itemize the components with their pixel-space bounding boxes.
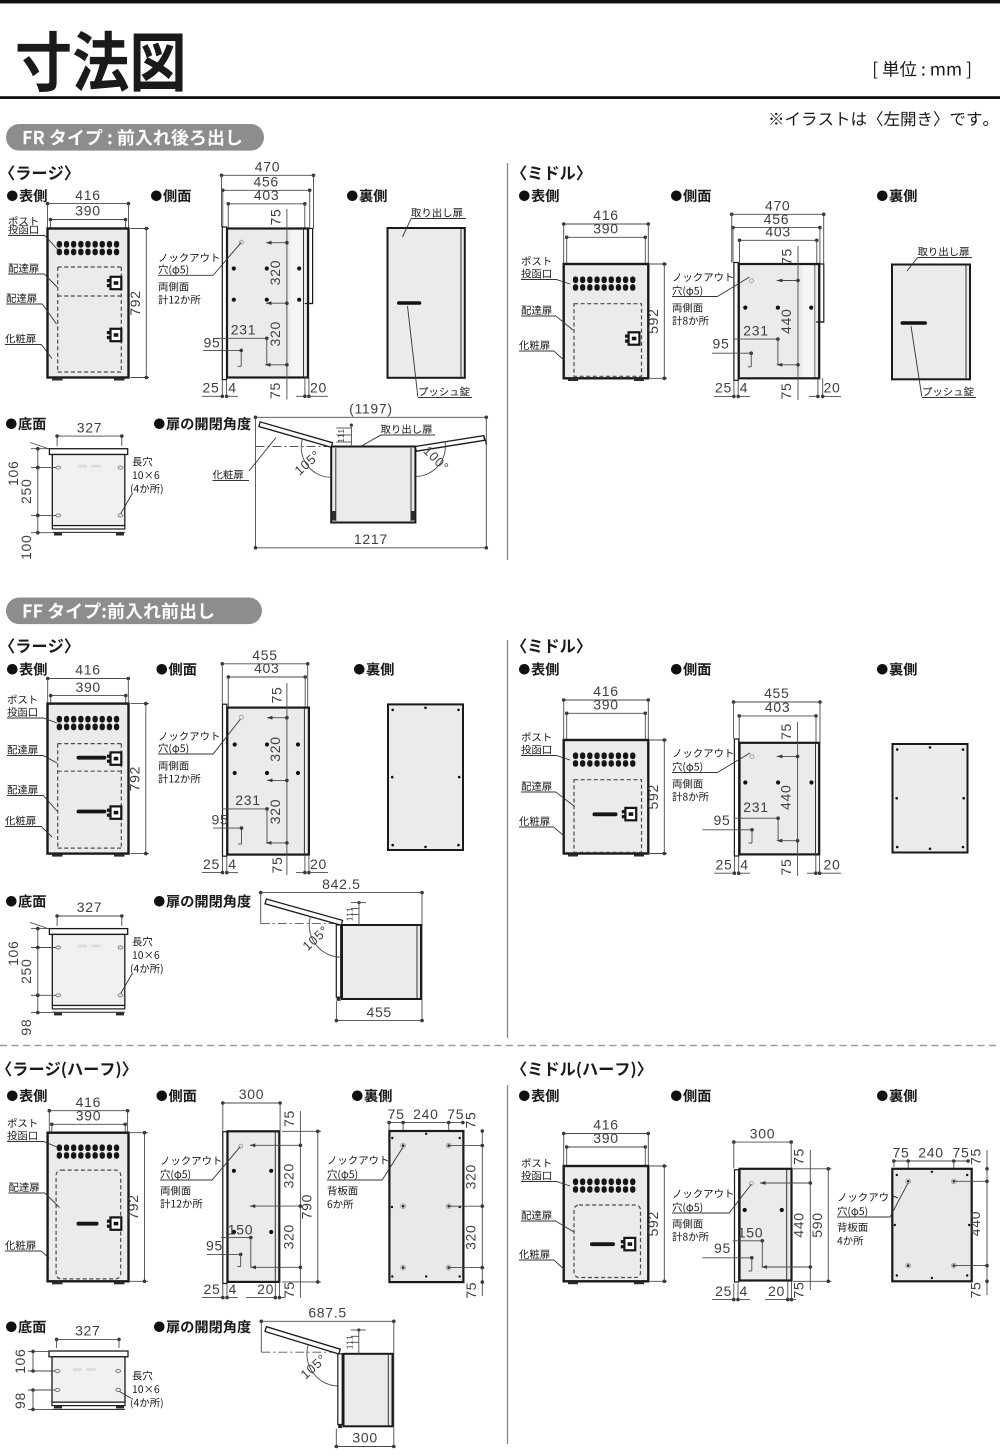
- svg-text:75: 75: [281, 1110, 297, 1127]
- svg-text:100°: 100°: [420, 443, 452, 475]
- svg-text:390: 390: [593, 697, 618, 713]
- svg-text:75: 75: [791, 1282, 807, 1299]
- svg-text:75: 75: [967, 1148, 983, 1165]
- svg-text:231: 231: [235, 792, 260, 808]
- svg-text:231: 231: [231, 322, 256, 338]
- svg-text:300: 300: [750, 1125, 775, 1141]
- svg-text:105°: 105°: [297, 1351, 329, 1382]
- svg-text:792: 792: [127, 290, 143, 315]
- svg-text:440: 440: [790, 1212, 806, 1237]
- svg-text:240: 240: [918, 1144, 943, 1160]
- svg-text:150: 150: [228, 1222, 253, 1238]
- svg-text:327: 327: [75, 1323, 100, 1339]
- svg-text:98: 98: [18, 1019, 34, 1036]
- svg-text:4: 4: [228, 380, 237, 396]
- svg-text:105°: 105°: [299, 923, 331, 954]
- svg-text:75: 75: [463, 1282, 479, 1299]
- svg-text:4: 4: [228, 856, 237, 872]
- svg-text:95: 95: [714, 812, 731, 828]
- svg-text:20: 20: [257, 1281, 274, 1297]
- svg-text:111: 111: [337, 428, 346, 442]
- svg-text:100: 100: [18, 534, 34, 559]
- svg-text:320: 320: [463, 1164, 479, 1189]
- svg-text:75: 75: [269, 687, 285, 704]
- svg-text:75: 75: [463, 1112, 479, 1129]
- svg-text:20: 20: [310, 380, 327, 396]
- svg-text:842.5: 842.5: [322, 876, 361, 892]
- svg-text:327: 327: [77, 419, 102, 435]
- svg-text:75: 75: [778, 248, 794, 265]
- svg-text:95: 95: [714, 1240, 731, 1256]
- svg-text:75: 75: [893, 1144, 910, 1160]
- svg-text:1217: 1217: [354, 531, 388, 547]
- svg-text:4: 4: [740, 380, 749, 396]
- svg-text:320: 320: [267, 799, 283, 824]
- svg-text:231: 231: [743, 323, 768, 339]
- svg-text:390: 390: [593, 1130, 618, 1146]
- svg-text:75: 75: [267, 209, 283, 226]
- svg-text:470: 470: [255, 159, 280, 175]
- svg-text:25: 25: [203, 856, 220, 872]
- svg-text:150: 150: [738, 1224, 763, 1240]
- svg-text:390: 390: [593, 221, 618, 237]
- svg-text:440: 440: [778, 785, 794, 810]
- svg-text:250: 250: [18, 479, 34, 504]
- svg-text:390: 390: [76, 1108, 101, 1124]
- svg-text:75: 75: [791, 1148, 807, 1165]
- svg-text:320: 320: [267, 321, 283, 346]
- svg-text:75: 75: [267, 382, 283, 399]
- svg-text:4: 4: [740, 857, 749, 873]
- svg-text:300: 300: [352, 1430, 377, 1446]
- svg-text:20: 20: [824, 857, 841, 873]
- svg-text:20: 20: [310, 856, 327, 872]
- svg-text:455: 455: [366, 1004, 391, 1020]
- svg-text:320: 320: [463, 1224, 479, 1249]
- svg-text:25: 25: [715, 380, 732, 396]
- svg-text:592: 592: [645, 784, 661, 809]
- svg-text:106: 106: [12, 1348, 28, 1373]
- svg-text:231: 231: [743, 799, 768, 815]
- svg-text:592: 592: [645, 1211, 661, 1236]
- svg-text:75: 75: [388, 1106, 405, 1122]
- svg-text:25: 25: [203, 380, 220, 396]
- svg-text:320: 320: [280, 1224, 296, 1249]
- svg-text:95: 95: [204, 335, 221, 351]
- svg-text:105°: 105°: [291, 447, 323, 478]
- svg-text:25: 25: [715, 1283, 732, 1299]
- svg-text:95: 95: [713, 336, 730, 352]
- svg-text:590: 590: [809, 1212, 825, 1237]
- svg-text:98: 98: [12, 1392, 28, 1409]
- svg-text:300: 300: [239, 1086, 264, 1102]
- svg-text:(1197): (1197): [349, 401, 393, 417]
- svg-text:792: 792: [125, 1194, 141, 1219]
- svg-text:75: 75: [778, 723, 794, 740]
- svg-text:95: 95: [212, 812, 229, 828]
- svg-text:440: 440: [778, 309, 794, 334]
- svg-text:20: 20: [768, 1283, 785, 1299]
- svg-text:592: 592: [645, 308, 661, 333]
- svg-text:403: 403: [254, 187, 279, 203]
- svg-text:320: 320: [267, 736, 283, 761]
- svg-text:390: 390: [75, 203, 100, 219]
- svg-text:20: 20: [824, 380, 841, 396]
- svg-text:25: 25: [716, 857, 733, 873]
- svg-text:75: 75: [778, 383, 794, 400]
- svg-text:320: 320: [267, 260, 283, 285]
- svg-text:4: 4: [739, 1283, 748, 1299]
- svg-text:25: 25: [204, 1281, 221, 1297]
- svg-text:111: 111: [346, 907, 355, 921]
- svg-text:792: 792: [126, 766, 142, 791]
- svg-text:75: 75: [281, 1281, 297, 1298]
- svg-text:416: 416: [75, 662, 100, 678]
- svg-text:403: 403: [765, 699, 790, 715]
- svg-text:75: 75: [778, 859, 794, 876]
- svg-text:440: 440: [967, 1211, 983, 1236]
- svg-text:240: 240: [413, 1106, 438, 1122]
- svg-text:95: 95: [206, 1238, 223, 1254]
- svg-text:4: 4: [228, 1281, 237, 1297]
- svg-text:75: 75: [269, 857, 285, 874]
- svg-text:403: 403: [765, 224, 790, 240]
- svg-text:111: 111: [345, 1335, 354, 1349]
- svg-text:687.5: 687.5: [308, 1305, 347, 1321]
- svg-text:250: 250: [18, 958, 34, 983]
- svg-text:327: 327: [77, 899, 102, 915]
- svg-text:75: 75: [967, 1282, 983, 1299]
- svg-text:403: 403: [254, 660, 279, 676]
- svg-text:416: 416: [75, 187, 100, 203]
- svg-text:790: 790: [298, 1194, 314, 1219]
- svg-text:320: 320: [280, 1163, 296, 1188]
- svg-text:390: 390: [75, 679, 100, 695]
